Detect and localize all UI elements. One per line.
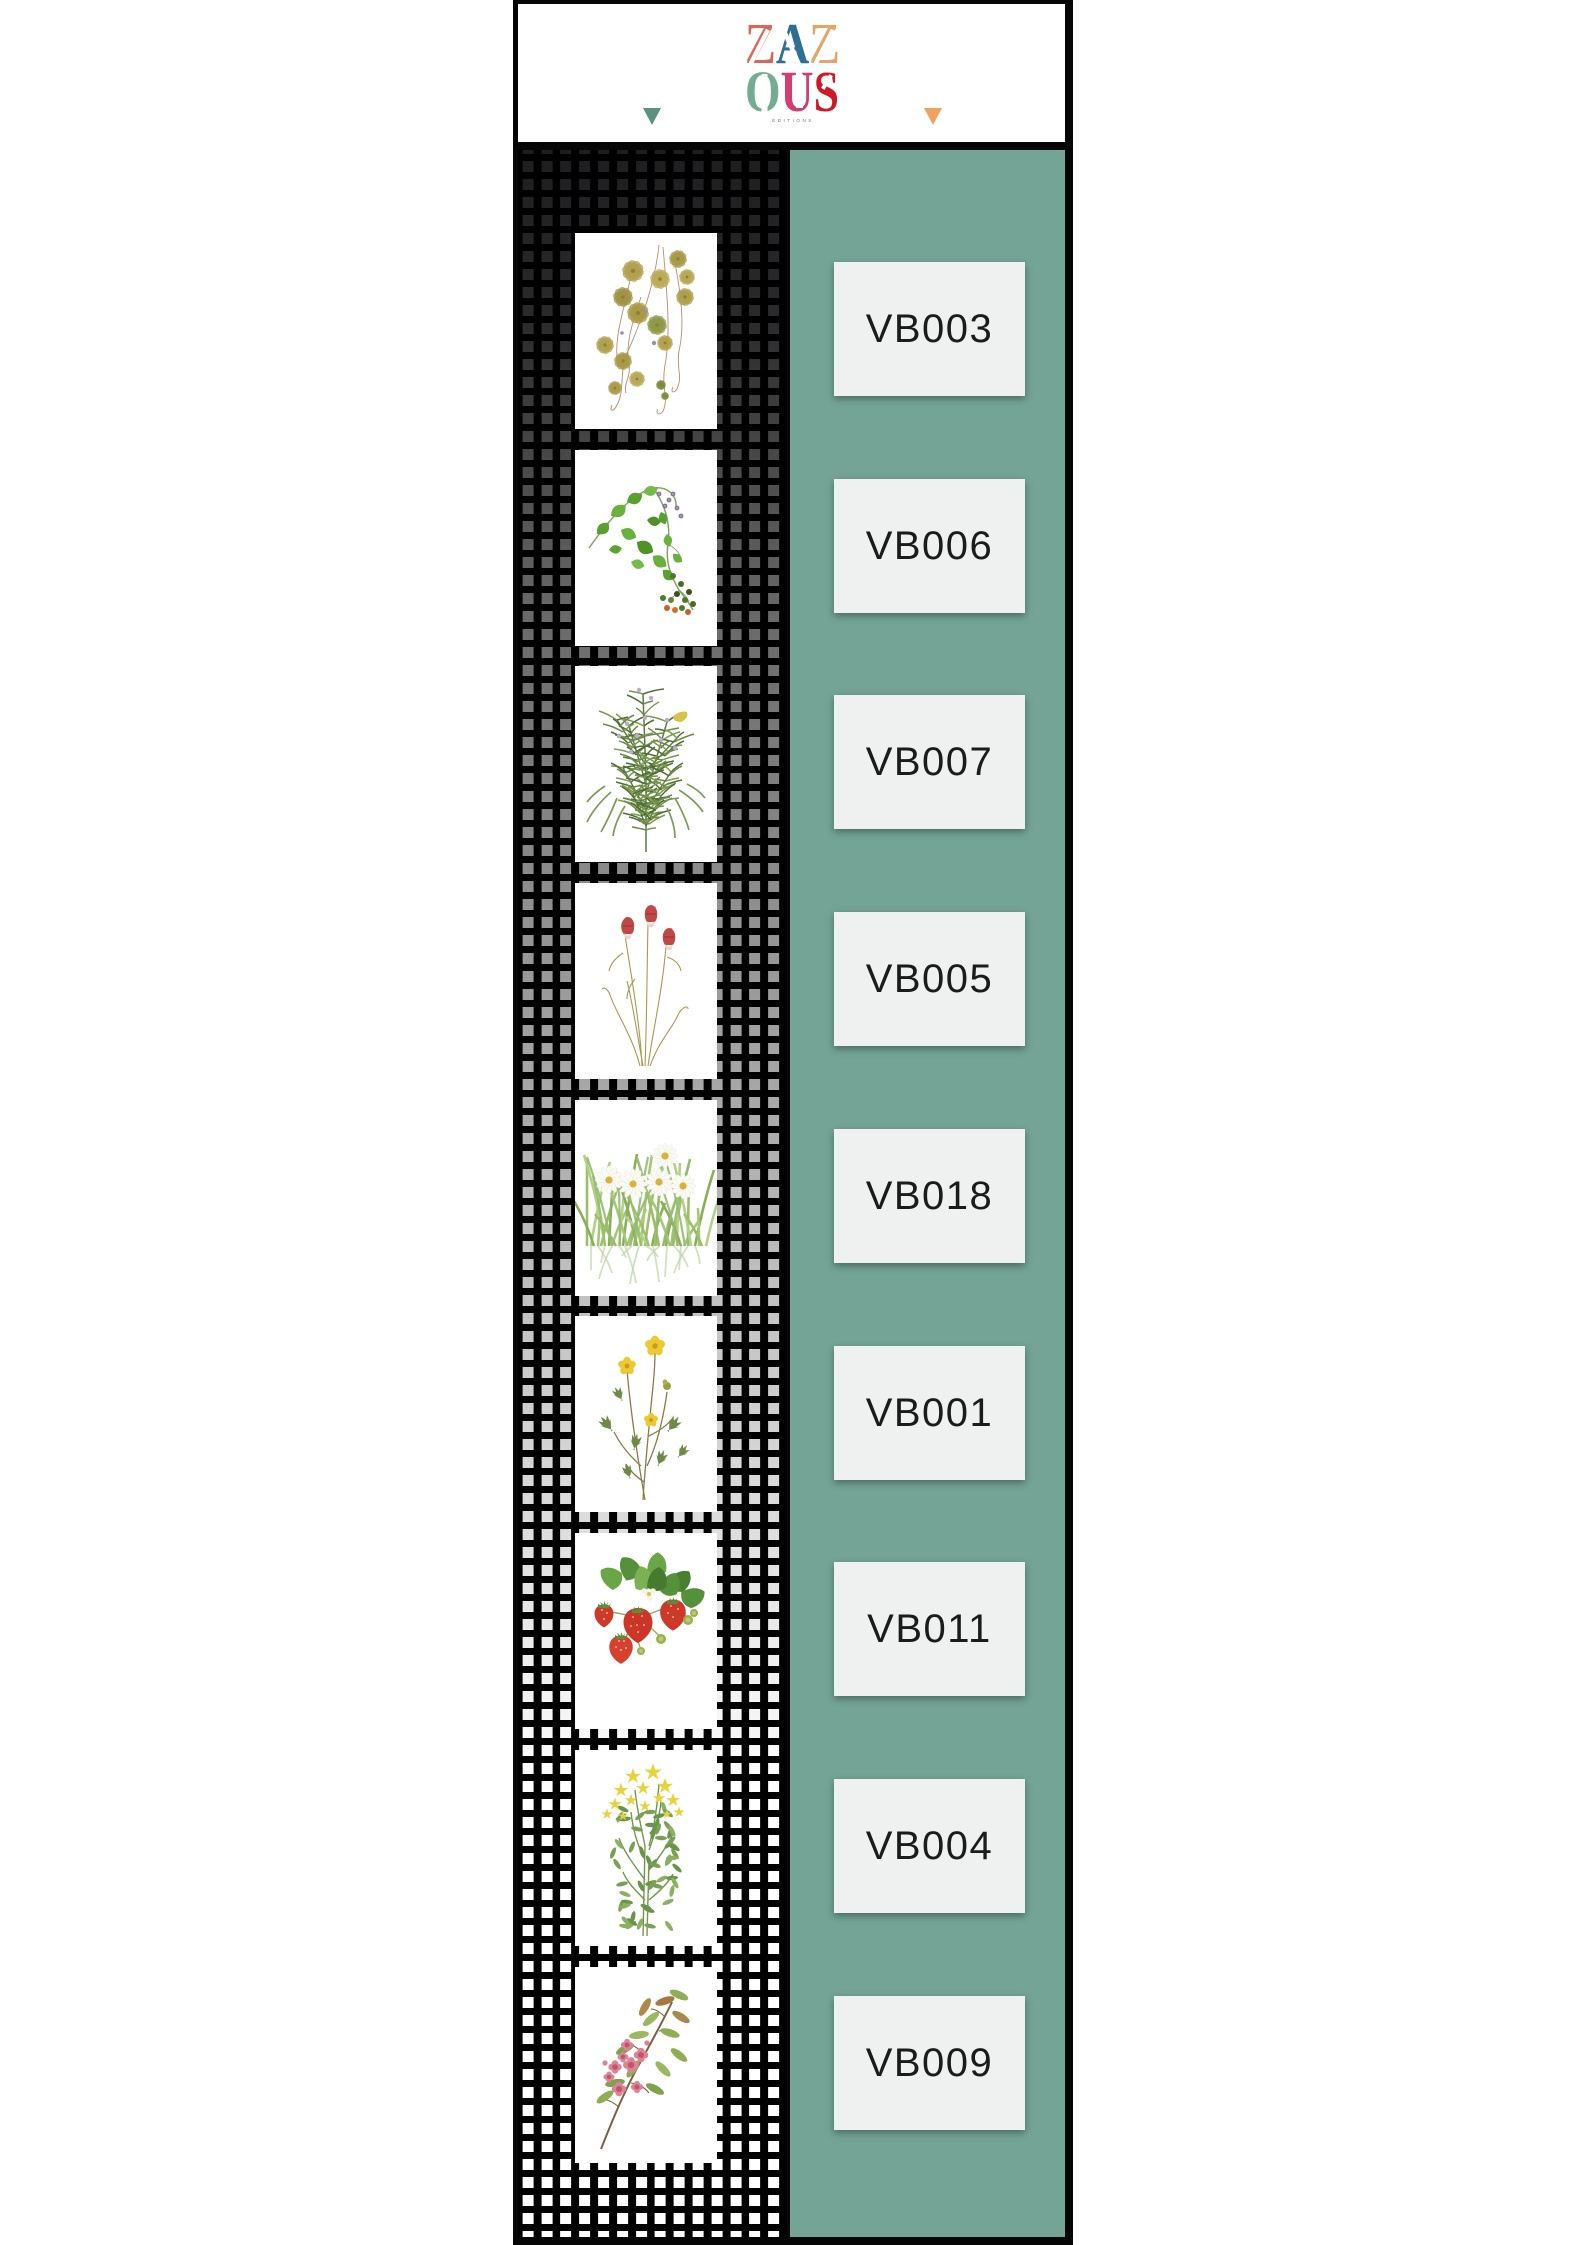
svg-text:OUS: OUS: [745, 59, 839, 124]
svg-text:ÉDITIONS: ÉDITIONS: [772, 117, 814, 123]
